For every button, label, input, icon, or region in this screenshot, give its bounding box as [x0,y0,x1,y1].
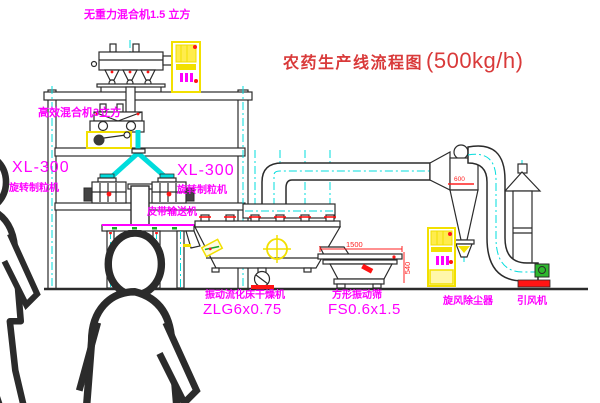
drop-pipe [128,184,152,228]
title-text: 农药生产线流程图 [283,49,423,73]
label-dryer-model: ZLG6x0.75 [203,302,282,317]
label-sieve-model: FS0.6x1.5 [328,302,401,317]
cyclone-inlet-transition [430,152,450,190]
label-fan: 引风机 [517,297,547,307]
control-cabinet-ground [428,228,455,286]
label-granulator-right-model: XL-300 [177,163,235,179]
sieve-height-dimension: 540 [403,262,412,275]
label-zero-gravity-mixer: 无重力混合机1.5 立方 [84,10,190,21]
label-sieve-name: 方形振动筛 [332,291,382,301]
label-high-efficiency-mixer: 高效混合机3立方 [38,108,121,119]
control-cabinet-top [172,42,200,92]
process-flow-diagram: 1500 540 600 [0,0,600,403]
rotary-granulator-left [84,174,126,203]
sieve-length-dimension: 1500 [346,240,363,249]
label-granulator-right-name: 旋转制粒机 [177,186,227,196]
label-belt-conveyor: 皮带输送机 [147,208,197,218]
drawing-title: 农药生产线流程图 (500kg/h) [283,48,523,74]
label-granulator-left-name: 旋转制粒机 [9,184,59,194]
label-granulator-left-model: XL-300 [12,160,70,176]
cyclone-diameter-dimension: 600 [454,176,465,183]
label-dryer-name: 振动流化床干燥机 [205,291,285,301]
dryer-exhaust-duct [262,163,430,206]
title-capacity: (500kg/h) [426,48,523,74]
dryer-vibration-motor [251,268,274,289]
label-cyclone: 旋风除尘器 [443,297,493,307]
